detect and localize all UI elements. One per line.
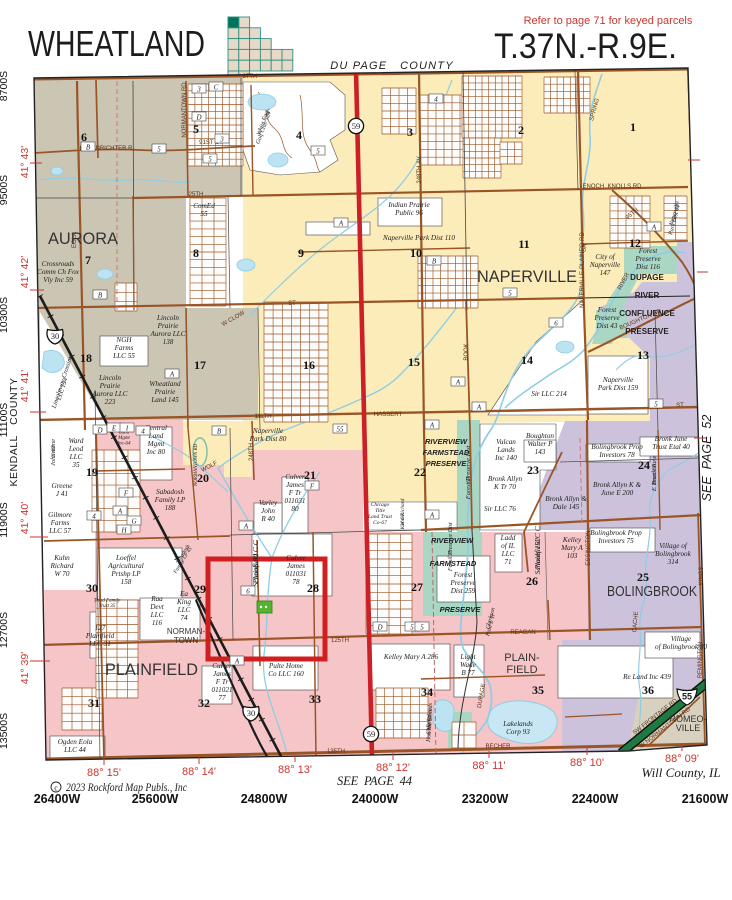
svg-text:Richard: Richard <box>50 562 74 570</box>
svg-text:32: 32 <box>198 696 210 710</box>
svg-text:88° 13': 88° 13' <box>278 764 312 776</box>
svg-text:Culver: Culver <box>286 554 306 562</box>
svg-text:F Tr: F Tr <box>215 678 229 686</box>
svg-text:LLC: LLC <box>177 606 191 614</box>
svg-text:Crossroads: Crossroads <box>42 260 75 268</box>
svg-text:22400W: 22400W <box>572 792 619 806</box>
svg-text:Indian Prairie: Indian Prairie <box>387 201 430 209</box>
svg-text:Wheatland: Wheatland <box>149 380 181 388</box>
svg-text:Forest: Forest <box>638 247 659 255</box>
svg-text:25TH: 25TH <box>189 192 204 198</box>
svg-text:27: 27 <box>411 580 423 594</box>
svg-text:Devt: Devt <box>149 603 165 611</box>
svg-text:147: 147 <box>600 269 611 277</box>
svg-text:Vulcan: Vulcan <box>496 438 516 446</box>
svg-text:13500S: 13500S <box>0 713 10 749</box>
svg-text:Gilmore: Gilmore <box>48 511 72 519</box>
svg-text:June E 200: June E 200 <box>601 489 634 497</box>
svg-text:35: 35 <box>71 461 80 469</box>
svg-text:Plainfield: Plainfield <box>85 632 115 640</box>
svg-text:25: 25 <box>637 570 649 584</box>
svg-text:59: 59 <box>352 121 361 131</box>
svg-text:Naperville Park Dist 110: Naperville Park Dist 110 <box>382 234 455 242</box>
svg-text:Culver: Culver <box>285 473 305 481</box>
svg-text:34: 34 <box>421 685 433 699</box>
svg-text:Ogden Eola: Ogden Eola <box>58 738 93 746</box>
svg-text:LLC 31: LLC 31 <box>88 640 111 648</box>
svg-text:A: A <box>651 224 657 232</box>
svg-text:Forest: Forest <box>597 306 618 314</box>
svg-text:Dist 43: Dist 43 <box>596 322 618 330</box>
svg-text:011031: 011031 <box>285 570 306 578</box>
svg-text:16: 16 <box>303 358 315 372</box>
svg-text:A: A <box>476 404 482 412</box>
svg-text:King: King <box>176 598 191 606</box>
svg-text:Lincoln: Lincoln <box>98 374 121 382</box>
svg-text:74: 74 <box>180 614 188 622</box>
svg-text:24: 24 <box>638 458 650 472</box>
svg-text:3: 3 <box>219 136 224 144</box>
svg-text:24000W: 24000W <box>352 792 399 806</box>
svg-text:LLC 55: LLC 55 <box>112 352 135 360</box>
svg-text:9500S: 9500S <box>0 175 10 205</box>
svg-text:Inc-64: Inc-64 <box>116 441 131 446</box>
svg-text:248TH AV: 248TH AV <box>417 156 423 183</box>
svg-text:D: D <box>376 624 382 632</box>
svg-text:Refer to page 71 for keyed par: Refer to page 71 for keyed parcels <box>524 15 693 27</box>
svg-text:5: 5 <box>316 148 320 156</box>
svg-text:9: 9 <box>298 246 304 260</box>
svg-text:REMINGTON: REMINGTON <box>698 642 704 679</box>
svg-text:NORMAN-: NORMAN- <box>167 627 206 636</box>
svg-text:Bolingbrook Prop: Bolingbrook Prop <box>590 529 642 537</box>
svg-text:LLC 57: LLC 57 <box>48 527 71 535</box>
svg-text:F: F <box>123 490 129 498</box>
svg-text:HASSERT: HASSERT <box>374 412 403 418</box>
svg-text:of IL: of IL <box>501 542 515 550</box>
svg-text:5: 5 <box>410 624 414 632</box>
svg-text:Re Land Inc 439: Re Land Inc 439 <box>622 673 671 681</box>
svg-text:LLC: LLC <box>69 453 83 461</box>
svg-text:G: G <box>131 518 136 526</box>
svg-text:Walter P: Walter P <box>527 440 553 448</box>
svg-text:Inc 80: Inc 80 <box>146 448 166 456</box>
svg-text:J 41: J 41 <box>56 490 68 498</box>
svg-text:A: A <box>169 371 175 379</box>
svg-text:011031: 011031 <box>284 497 305 505</box>
svg-text:Sir LLC 76: Sir LLC 76 <box>484 505 516 513</box>
svg-text:143: 143 <box>535 448 546 456</box>
svg-text:Lincoln: Lincoln <box>156 314 179 322</box>
svg-text:NAPERVILLE: NAPERVILLE <box>477 267 577 286</box>
svg-text:City of: City of <box>595 253 615 261</box>
svg-text:11: 11 <box>518 237 529 251</box>
svg-text:188: 188 <box>165 504 176 512</box>
svg-text:Loeffel: Loeffel <box>115 554 136 562</box>
svg-text:NORMANTOWN RD: NORMANTOWN RD <box>194 443 199 487</box>
svg-text:E: E <box>111 425 117 433</box>
svg-text:Prtshp LP: Prtshp LP <box>110 570 141 578</box>
svg-text:Prairie: Prairie <box>99 382 122 390</box>
svg-text:NORMANTOWN RD: NORMANTOWN RD <box>182 82 188 138</box>
svg-text:BOOK: BOOK <box>464 343 470 360</box>
svg-text:28: 28 <box>307 581 319 595</box>
svg-text:Village: Village <box>671 635 692 643</box>
svg-text:Bronk Allyn &: Bronk Allyn & <box>545 495 587 503</box>
svg-text:15: 15 <box>408 355 420 369</box>
svg-text:SEE PAGE 44: SEE PAGE 44 <box>337 774 412 788</box>
svg-text:Trust 35: Trust 35 <box>99 604 116 609</box>
svg-text:12700S: 12700S <box>0 612 10 648</box>
svg-text:4: 4 <box>92 513 96 521</box>
svg-text:125TH: 125TH <box>331 638 349 644</box>
svg-text:James: James <box>213 670 231 678</box>
svg-text:TOWN: TOWN <box>174 636 199 645</box>
svg-text:10: 10 <box>410 246 422 260</box>
svg-text:Varley: Varley <box>259 499 278 507</box>
svg-text:Naperville: Naperville <box>589 261 621 269</box>
svg-text:31: 31 <box>88 696 100 710</box>
svg-text:3: 3 <box>196 86 201 94</box>
svg-text:Sir LLC 214: Sir LLC 214 <box>531 390 567 398</box>
svg-text:41° 41': 41° 41' <box>19 370 31 402</box>
svg-text:E Trust 80: E Trust 80 <box>651 463 658 492</box>
svg-text:55: 55 <box>200 210 208 218</box>
svg-text:26: 26 <box>526 574 538 588</box>
svg-text:C: C <box>214 84 219 92</box>
svg-text:BECHER: BECHER <box>485 744 511 750</box>
svg-text:116: 116 <box>152 619 163 627</box>
svg-text:33: 33 <box>309 692 321 706</box>
svg-text:PRESERVE: PRESERVE <box>440 605 482 614</box>
svg-text:41° 40': 41° 40' <box>19 502 31 534</box>
svg-text:Dale 145: Dale 145 <box>552 503 580 511</box>
svg-text:5: 5 <box>208 156 212 164</box>
svg-text:Investors 75: Investors 75 <box>597 537 634 545</box>
svg-text:James: James <box>287 562 305 570</box>
svg-text:138: 138 <box>163 338 174 346</box>
svg-text:63: 63 <box>465 476 472 483</box>
svg-text:Bolingbrook: Bolingbrook <box>655 550 691 558</box>
svg-text:314: 314 <box>667 558 679 566</box>
svg-text:Ea: Ea <box>179 590 188 598</box>
svg-text:30: 30 <box>247 708 256 718</box>
svg-text:5: 5 <box>193 122 199 136</box>
svg-text:NGH: NGH <box>115 336 132 344</box>
svg-text:EOLA: EOLA <box>72 232 78 248</box>
svg-text:24800W: 24800W <box>241 792 288 806</box>
svg-text:LLC: LLC <box>150 611 164 619</box>
svg-text:41° 43': 41° 43' <box>19 146 31 178</box>
svg-text:36: 36 <box>642 683 654 697</box>
svg-text:Preserve: Preserve <box>634 255 661 263</box>
svg-text:7: 7 <box>85 253 91 267</box>
svg-text:LLC 44: LLC 44 <box>63 746 86 754</box>
svg-text:B: B <box>86 144 91 152</box>
svg-text:B 77: B 77 <box>461 669 475 677</box>
svg-text:Agricultural: Agricultural <box>107 562 144 570</box>
svg-text:Farms: Farms <box>50 519 70 527</box>
svg-text:NAPERVILLE-PLAINF'D RD: NAPERVILLE-PLAINF'D RD <box>580 231 586 307</box>
svg-text:Pulte Home: Pulte Home <box>268 662 304 670</box>
svg-text:FIELD: FIELD <box>506 664 537 676</box>
svg-text:H: H <box>120 527 127 535</box>
svg-text:6: 6 <box>246 588 250 596</box>
svg-text:A: A <box>243 523 249 531</box>
svg-text:Light: Light <box>459 653 476 661</box>
svg-text:Dist 259: Dist 259 <box>450 587 476 595</box>
svg-text:Bronk Allyn K &: Bronk Allyn K & <box>593 481 642 489</box>
svg-text:Park Dist 80: Park Dist 80 <box>249 435 287 443</box>
svg-text:4: 4 <box>434 96 438 104</box>
svg-text:Aurora LLC: Aurora LLC <box>91 390 127 398</box>
svg-text:Prairie: Prairie <box>154 388 177 396</box>
svg-text:B: B <box>98 292 103 300</box>
svg-text:Vly Inc 59: Vly Inc 59 <box>43 276 73 284</box>
svg-text:FARMSTEAD: FARMSTEAD <box>423 448 470 457</box>
svg-text:REAGAN: REAGAN <box>510 630 535 636</box>
svg-text:Leod: Leod <box>68 445 84 453</box>
svg-text:W 70: W 70 <box>55 570 70 578</box>
svg-text:F Tr: F Tr <box>288 489 302 497</box>
svg-text:KINGS: KINGS <box>699 567 705 586</box>
svg-text:87TH: 87TH <box>243 74 258 80</box>
svg-text:Land 145: Land 145 <box>150 396 179 404</box>
svg-text:Lakelands: Lakelands <box>502 720 533 728</box>
svg-text:41° 42': 41° 42' <box>19 256 31 288</box>
svg-text:Park Dist 159: Park Dist 159 <box>597 384 639 392</box>
svg-text:Inc 140: Inc 140 <box>494 454 517 462</box>
svg-text:Mgmt: Mgmt <box>147 440 166 448</box>
svg-text:21600W: 21600W <box>682 792 729 806</box>
svg-text:13: 13 <box>637 348 649 362</box>
svg-text:Trust Etal 40: Trust Etal 40 <box>652 443 690 451</box>
svg-text:35: 35 <box>448 550 454 557</box>
svg-text:DU PAGE COUNTY: DU PAGE COUNTY <box>330 60 454 72</box>
svg-text:71: 71 <box>504 558 511 566</box>
svg-text:5: 5 <box>420 624 424 632</box>
svg-text:Raa: Raa <box>150 595 163 603</box>
svg-text:A: A <box>429 422 435 430</box>
svg-text:11900S: 11900S <box>0 502 10 537</box>
svg-text:Prairie: Prairie <box>157 322 180 330</box>
svg-text:Preserve: Preserve <box>593 314 620 322</box>
svg-text:ComEd: ComEd <box>193 202 215 210</box>
svg-text:88° 14': 88° 14' <box>182 766 216 778</box>
svg-text:Wade: Wade <box>460 661 477 669</box>
svg-text:A: A <box>117 508 123 516</box>
svg-text:Public 96: Public 96 <box>394 209 423 217</box>
svg-text:ST: ST <box>288 301 296 307</box>
svg-text:88° 09': 88° 09' <box>665 753 699 765</box>
svg-text:BOLINGBROOK: BOLINGBROOK <box>607 583 697 600</box>
svg-text:Forest: Forest <box>453 571 474 579</box>
svg-text:PLAIN-: PLAIN- <box>504 652 540 664</box>
svg-text:Mgmt: Mgmt <box>117 436 130 441</box>
svg-text:41° 39': 41° 39' <box>19 652 31 684</box>
svg-text:Ward: Ward <box>68 437 83 445</box>
svg-text:Will County, IL: Will County, IL <box>641 765 720 780</box>
svg-text:Greene: Greene <box>52 482 74 490</box>
svg-text:35: 35 <box>532 683 544 697</box>
svg-text:29: 29 <box>194 582 206 596</box>
svg-text:30: 30 <box>86 581 98 595</box>
svg-text:10300S: 10300S <box>0 297 10 333</box>
svg-text:Investors 78: Investors 78 <box>598 451 635 459</box>
svg-text:Preserve: Preserve <box>449 579 476 587</box>
svg-text:B: B <box>217 428 222 436</box>
svg-text:B: B <box>432 258 437 266</box>
svg-text:25600W: 25600W <box>132 792 179 806</box>
svg-text:77: 77 <box>218 694 226 702</box>
svg-text:D: D <box>96 427 102 435</box>
svg-text:22: 22 <box>414 465 426 479</box>
svg-text:17: 17 <box>194 358 206 372</box>
svg-text:011021: 011021 <box>211 686 232 694</box>
svg-text:248TH: 248TH <box>249 443 255 461</box>
svg-text:Naperville: Naperville <box>602 376 634 384</box>
svg-text:R 40: R 40 <box>260 515 275 523</box>
svg-text:55: 55 <box>337 426 345 434</box>
svg-text:223: 223 <box>105 398 116 406</box>
svg-text:Family LP: Family LP <box>154 496 186 504</box>
svg-text:Forest Preserve Dist: Forest Preserve Dist <box>465 445 472 500</box>
svg-text:W 60: W 60 <box>400 514 406 526</box>
svg-text:4: 4 <box>141 428 145 436</box>
svg-text:Bolingbrook Prop: Bolingbrook Prop <box>591 443 643 451</box>
svg-text:D: D <box>195 114 201 122</box>
svg-text:Naperville: Naperville <box>252 427 284 435</box>
svg-text:8: 8 <box>193 246 199 260</box>
svg-text:135TH: 135TH <box>327 749 345 755</box>
svg-text:Kuhn: Kuhn <box>53 554 70 562</box>
svg-text:6: 6 <box>554 320 558 328</box>
svg-text:5: 5 <box>157 146 161 154</box>
svg-text:DUPAGE: DUPAGE <box>630 273 664 282</box>
svg-text:A: A <box>429 512 435 520</box>
svg-text:Lands: Lands <box>496 446 515 454</box>
svg-text:23: 23 <box>527 463 539 477</box>
svg-text:Thisd Family: Thisd Family <box>94 598 121 603</box>
svg-text:PRESERVE: PRESERVE <box>426 459 468 468</box>
svg-text:Comm Ch Fox: Comm Ch Fox <box>37 268 80 276</box>
svg-text:F: F <box>309 483 315 491</box>
svg-text:LLC: LLC <box>501 550 515 558</box>
svg-text:111TH: 111TH <box>254 414 271 420</box>
svg-text:RIVER: RIVER <box>635 291 660 300</box>
svg-text:PLAINFIELD: PLAINFIELD <box>105 660 198 679</box>
svg-text:A: A <box>455 379 461 387</box>
svg-text:Aurora LLC: Aurora LLC <box>149 330 185 338</box>
svg-text:88° 12': 88° 12' <box>376 762 410 774</box>
svg-text:14: 14 <box>521 353 533 367</box>
svg-text:1: 1 <box>630 120 636 134</box>
svg-text:Co LLC 160: Co LLC 160 <box>268 670 304 678</box>
svg-text:3: 3 <box>407 125 413 139</box>
svg-text:4: 4 <box>296 128 302 142</box>
svg-text:Sabadosh: Sabadosh <box>156 488 184 496</box>
svg-text:VILLE: VILLE <box>676 723 701 733</box>
svg-text:John: John <box>261 507 275 515</box>
svg-text:2: 2 <box>518 123 524 137</box>
svg-text:23200W: 23200W <box>462 792 509 806</box>
svg-text:Farms: Farms <box>114 344 134 352</box>
svg-text:A: A <box>338 220 344 228</box>
svg-text:Mary A: Mary A <box>560 544 583 552</box>
svg-text:T.37N.-R.9E.: T.37N.-R.9E. <box>494 27 677 66</box>
svg-text:103: 103 <box>567 552 578 560</box>
svg-text:88° 11': 88° 11' <box>472 760 505 772</box>
svg-text:78: 78 <box>292 578 300 586</box>
svg-text:8700S: 8700S <box>0 71 10 101</box>
svg-text:ENOCH KNOLLS RD: ENOCH KNOLLS RD <box>582 184 642 190</box>
svg-text:88° 10': 88° 10' <box>570 757 604 769</box>
svg-text:18: 18 <box>80 351 92 365</box>
svg-text:Village of: Village of <box>659 542 688 550</box>
svg-text:WHEATLAND: WHEATLAND <box>28 23 205 64</box>
svg-text:26400W: 26400W <box>34 792 81 806</box>
svg-text:Ladd: Ladd <box>500 534 516 542</box>
svg-text:80: 80 <box>291 505 299 513</box>
svg-text:127: 127 <box>95 624 106 632</box>
svg-text:19: 19 <box>86 465 98 479</box>
svg-text:A: A <box>234 658 240 666</box>
svg-text:ESSINGTON: ESSINGTON <box>586 530 592 565</box>
svg-text:Co-67: Co-67 <box>373 520 387 526</box>
svg-text:Schools 80: Schools 80 <box>251 554 260 587</box>
svg-text:5: 5 <box>508 290 512 298</box>
svg-text:158: 158 <box>121 578 132 586</box>
svg-text:Kelley Mary A 286: Kelley Mary A 286 <box>383 653 439 661</box>
svg-text:59: 59 <box>367 729 376 739</box>
svg-text:Fossil Preserve Dist: Fossil Preserve Dist <box>448 522 454 572</box>
svg-text:30: 30 <box>51 331 60 341</box>
svg-text:Schools 152: Schools 152 <box>533 538 542 575</box>
svg-text:5: 5 <box>654 401 658 409</box>
svg-text:John 63: John 63 <box>50 444 57 466</box>
svg-text:Dist 116: Dist 116 <box>635 263 660 271</box>
svg-text:James: James <box>286 481 304 489</box>
svg-text:Culver: Culver <box>212 662 232 670</box>
svg-text:55: 55 <box>682 691 692 701</box>
svg-text:PRESERVE: PRESERVE <box>625 327 669 336</box>
svg-text:Bronk Allyn: Bronk Allyn <box>488 475 523 483</box>
svg-text:Boughton: Boughton <box>526 432 554 440</box>
svg-text:88° 15': 88° 15' <box>87 767 121 779</box>
svg-text:RIVERVIEW: RIVERVIEW <box>425 437 468 446</box>
svg-text:AURORA: AURORA <box>48 229 119 248</box>
svg-text:Bronk June: Bronk June <box>655 435 688 443</box>
svg-text:21: 21 <box>304 468 316 482</box>
svg-text:Kelley: Kelley <box>562 536 582 544</box>
svg-text:SEE PAGE 52: SEE PAGE 52 <box>700 415 714 502</box>
svg-text:Corp 93: Corp 93 <box>506 728 530 736</box>
svg-text:ST: ST <box>676 403 684 409</box>
svg-text:K Tr 70: K Tr 70 <box>493 483 516 491</box>
svg-text:KENDALL COUNTY: KENDALL COUNTY <box>8 378 20 487</box>
